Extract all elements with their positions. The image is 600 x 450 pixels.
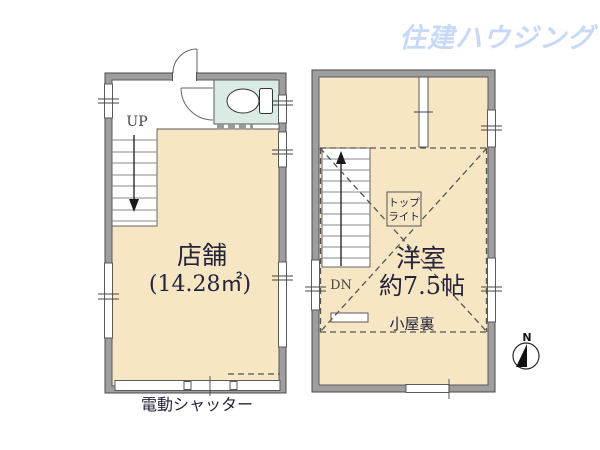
shop-area-label: (14.28㎡)	[149, 271, 251, 297]
shutter-caption: 電動シャッター	[141, 395, 253, 414]
right-floor-plan: DN トップ ライト	[305, 70, 502, 399]
page-background	[0, 0, 600, 450]
western-room-label: 洋室	[396, 244, 446, 273]
toilet-icon	[227, 89, 273, 114]
skylight-box: トップ ライト	[387, 192, 421, 226]
western-room-size-label: 約7.5帖	[379, 272, 465, 300]
left-floor-plan: UP	[98, 49, 293, 414]
floor-plan-page: 住建ハウジング UP	[0, 0, 600, 450]
floor-plan-drawing: 住建ハウジング UP	[0, 0, 600, 450]
dn-label: DN	[330, 278, 352, 293]
stairs-down	[322, 148, 370, 267]
attic-label: 小屋裏	[389, 315, 434, 333]
shop-room-label: 店舗	[177, 241, 227, 270]
company-logo: 住建ハウジング	[399, 23, 599, 53]
up-label: UP	[126, 114, 147, 130]
north-label: N	[522, 331, 531, 344]
skylight-label-line2: ライト	[388, 211, 420, 223]
skylight-label-line1: トップ	[388, 197, 420, 209]
